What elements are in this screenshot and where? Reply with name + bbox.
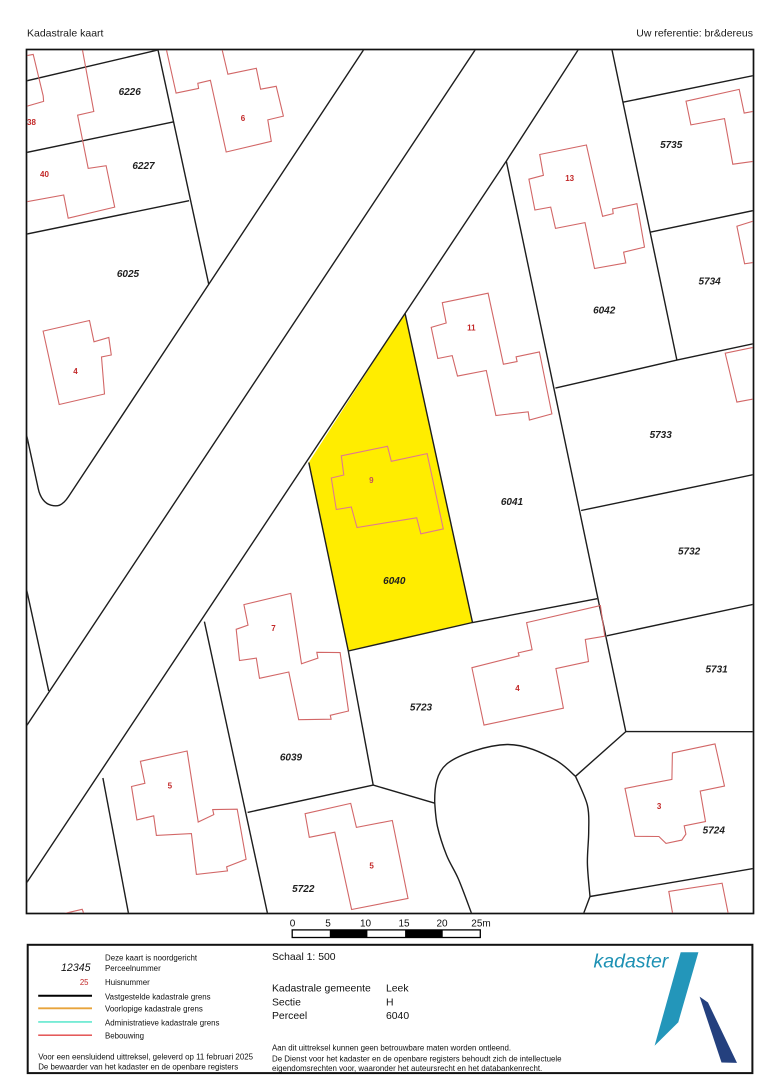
svg-text:5: 5 — [168, 781, 173, 790]
svg-text:5: 5 — [325, 919, 331, 930]
svg-text:6041: 6041 — [501, 497, 524, 508]
svg-text:Vastgestelde kadastrale grens: Vastgestelde kadastrale grens — [105, 992, 211, 1001]
svg-text:6039: 6039 — [280, 753, 303, 764]
svg-text:5734: 5734 — [698, 276, 721, 287]
svg-text:6226: 6226 — [119, 87, 142, 98]
svg-text:5722: 5722 — [292, 884, 315, 895]
svg-text:Huisnummer: Huisnummer — [105, 978, 150, 987]
svg-text:25: 25 — [80, 978, 89, 987]
svg-text:Perceel: Perceel — [272, 1011, 307, 1022]
svg-text:eigendomsrechten voor, waarond: eigendomsrechten voor, waaronder het aut… — [272, 1064, 542, 1073]
svg-text:40: 40 — [40, 170, 49, 179]
svg-text:5735: 5735 — [660, 140, 683, 151]
svg-text:15: 15 — [398, 919, 410, 930]
svg-text:4: 4 — [73, 367, 78, 376]
svg-text:6040: 6040 — [386, 1011, 409, 1022]
svg-text:Aan dit uittreksel kunnen geen: Aan dit uittreksel kunnen geen betrouwba… — [272, 1044, 511, 1053]
svg-text:11: 11 — [467, 323, 476, 332]
svg-text:Voorlopige kadastrale grens: Voorlopige kadastrale grens — [105, 1005, 203, 1014]
svg-text:Bebouwing: Bebouwing — [105, 1032, 144, 1041]
svg-text:6025: 6025 — [117, 269, 140, 280]
svg-text:4: 4 — [515, 684, 520, 693]
svg-text:5723: 5723 — [410, 702, 433, 713]
svg-text:0: 0 — [290, 919, 296, 930]
svg-text:3: 3 — [657, 802, 662, 811]
svg-text:7: 7 — [271, 624, 276, 633]
svg-text:Schaal 1: 500: Schaal 1: 500 — [272, 952, 336, 963]
svg-text:20: 20 — [436, 919, 448, 930]
svg-text:6227: 6227 — [132, 161, 155, 172]
svg-text:Uw referentie: br&dereus: Uw referentie: br&dereus — [636, 28, 753, 40]
svg-text:Voor een eensluidend uittrekse: Voor een eensluidend uittreksel, gelever… — [38, 1052, 253, 1061]
svg-text:De Dienst voor het kadaster en: De Dienst voor het kadaster en de openba… — [272, 1055, 562, 1064]
svg-text:38: 38 — [27, 118, 36, 127]
svg-text:5732: 5732 — [678, 547, 701, 558]
svg-text:13: 13 — [565, 174, 574, 183]
svg-text:kadaster: kadaster — [594, 951, 670, 973]
svg-text:6042: 6042 — [593, 306, 616, 317]
svg-text:25m: 25m — [471, 919, 490, 930]
svg-text:5724: 5724 — [703, 826, 726, 837]
svg-text:5: 5 — [369, 862, 374, 871]
svg-text:De bewaarder van het kadaster: De bewaarder van het kadaster en de open… — [38, 1063, 238, 1072]
svg-text:Kadastrale kaart: Kadastrale kaart — [27, 28, 104, 40]
svg-text:5733: 5733 — [650, 430, 673, 441]
svg-text:6: 6 — [241, 114, 246, 123]
svg-text:9: 9 — [369, 476, 374, 485]
svg-text:12345: 12345 — [61, 962, 91, 974]
svg-text:Leek: Leek — [386, 984, 409, 995]
svg-text:6040: 6040 — [383, 576, 406, 587]
svg-text:5731: 5731 — [705, 665, 728, 676]
svg-text:Perceelnummer: Perceelnummer — [105, 964, 161, 973]
svg-text:H: H — [386, 998, 394, 1009]
svg-text:Sectie: Sectie — [272, 998, 301, 1009]
svg-text:Kadastrale gemeente: Kadastrale gemeente — [272, 984, 371, 995]
svg-text:Deze kaart is noordgericht: Deze kaart is noordgericht — [105, 953, 198, 962]
svg-text:10: 10 — [360, 919, 372, 930]
svg-text:Administratieve kadastrale gre: Administratieve kadastrale grens — [105, 1018, 220, 1027]
